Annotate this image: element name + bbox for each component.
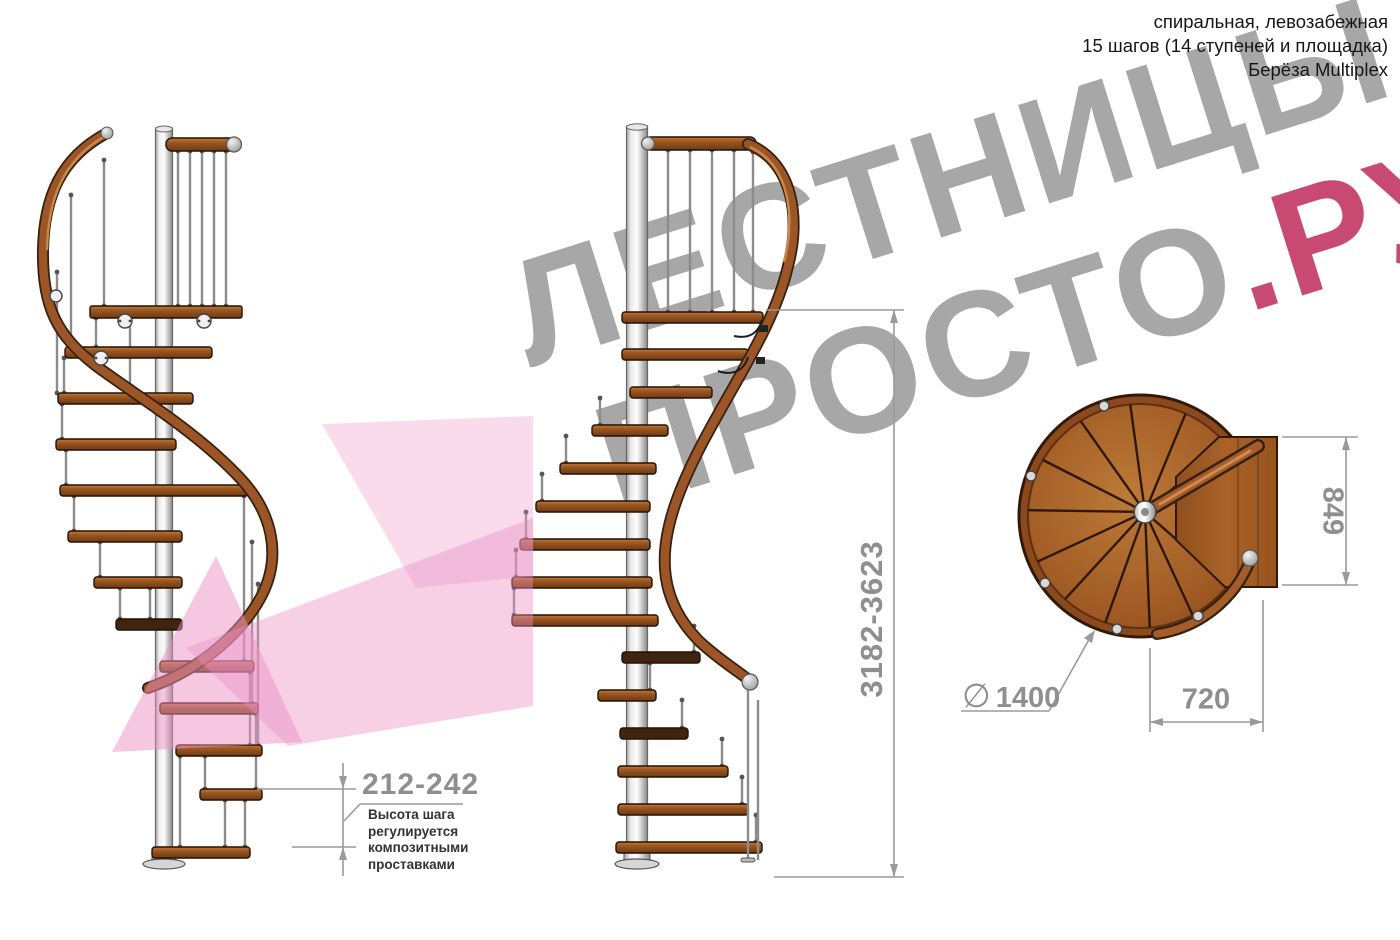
spec-header: спиральная, левозабежная 15 шагов (14 ст… xyxy=(1082,10,1388,82)
step-board xyxy=(616,842,762,853)
middle-rail-collar xyxy=(642,137,655,150)
middle-spiral-handrail xyxy=(665,144,794,690)
step-board xyxy=(512,615,658,626)
step-board xyxy=(598,690,656,701)
middle-rail-end-ball xyxy=(742,674,758,690)
left-base-flange xyxy=(143,859,185,869)
baluster-joint xyxy=(69,193,74,198)
baluster-joint xyxy=(720,737,725,742)
left-rail-top-cap xyxy=(101,127,113,139)
left-center-pole xyxy=(156,128,173,866)
step-board xyxy=(60,485,248,496)
left-pole-cap xyxy=(156,126,173,132)
step-board xyxy=(630,387,712,398)
baluster-joint xyxy=(680,698,685,703)
dimension-total-height: 3182-3623 xyxy=(854,540,890,697)
dimension-diameter: ∅1400 xyxy=(962,676,1060,715)
baluster-joint xyxy=(740,775,745,780)
middle-base-flange xyxy=(615,859,659,869)
step-board xyxy=(622,652,700,663)
spec-material: Берёза Multiplex xyxy=(1082,58,1388,82)
left-handrail-end-cap xyxy=(227,137,242,152)
diameter-value: 1400 xyxy=(996,682,1061,714)
plan-view xyxy=(1019,395,1277,637)
bracket-plate-1 xyxy=(759,325,768,332)
step-board xyxy=(200,789,262,800)
step-board xyxy=(58,393,193,404)
step-board xyxy=(622,349,748,360)
step-board xyxy=(152,847,250,858)
spec-type: спиральная, левозабежная xyxy=(1082,10,1388,34)
baluster-joint xyxy=(598,396,603,401)
step-height-note: Высота шага регулируется композитными пр… xyxy=(368,807,498,873)
step-board xyxy=(56,439,176,450)
bracket-plate-2 xyxy=(756,357,765,364)
step-board xyxy=(560,463,656,474)
step-board xyxy=(620,728,688,739)
middle-center-pole xyxy=(627,126,648,866)
baluster-joint xyxy=(564,434,569,439)
step-board xyxy=(618,804,748,815)
left-platform-board xyxy=(90,306,242,318)
baluster-joint xyxy=(250,540,255,545)
plan-baluster-dot xyxy=(1112,624,1122,634)
dimension-platform-depth: 849 xyxy=(1316,487,1349,535)
middle-staircase-elevation xyxy=(512,124,794,869)
staircase-drawing xyxy=(0,0,1400,940)
spec-steps: 15 шагов (14 ступеней и площадка) xyxy=(1082,34,1388,58)
plan-baluster-dot xyxy=(1193,611,1203,621)
step-board xyxy=(520,539,650,550)
plan-rail-ball xyxy=(1242,550,1258,566)
step-board xyxy=(618,766,728,777)
left-staircase-elevation xyxy=(43,126,272,869)
dimension-step-height: 212-242 xyxy=(362,768,479,802)
plan-baluster-dot xyxy=(1099,401,1109,411)
diameter-symbol: ∅ xyxy=(962,677,991,714)
middle-pole-cap xyxy=(627,124,648,130)
plan-pole-core xyxy=(1141,508,1149,516)
step-board xyxy=(592,425,668,436)
baluster-joint xyxy=(540,472,545,477)
step-board xyxy=(68,531,182,542)
dimension-landing-width: 720 xyxy=(1182,684,1230,717)
plan-baluster-dot xyxy=(1026,471,1036,481)
step-board xyxy=(116,619,182,630)
step-board xyxy=(536,501,650,512)
step-board xyxy=(94,577,182,588)
blueprint-canvas: ЛЕСТНИЦЫ ПРОСТО.РУ xyxy=(0,0,1400,940)
baluster-joint xyxy=(102,158,107,163)
middle-rod-foot xyxy=(741,858,755,862)
step-board xyxy=(622,312,763,323)
plan-baluster-dot xyxy=(1040,578,1050,588)
middle-top-handrail xyxy=(644,137,756,150)
baluster-joint xyxy=(55,270,60,275)
